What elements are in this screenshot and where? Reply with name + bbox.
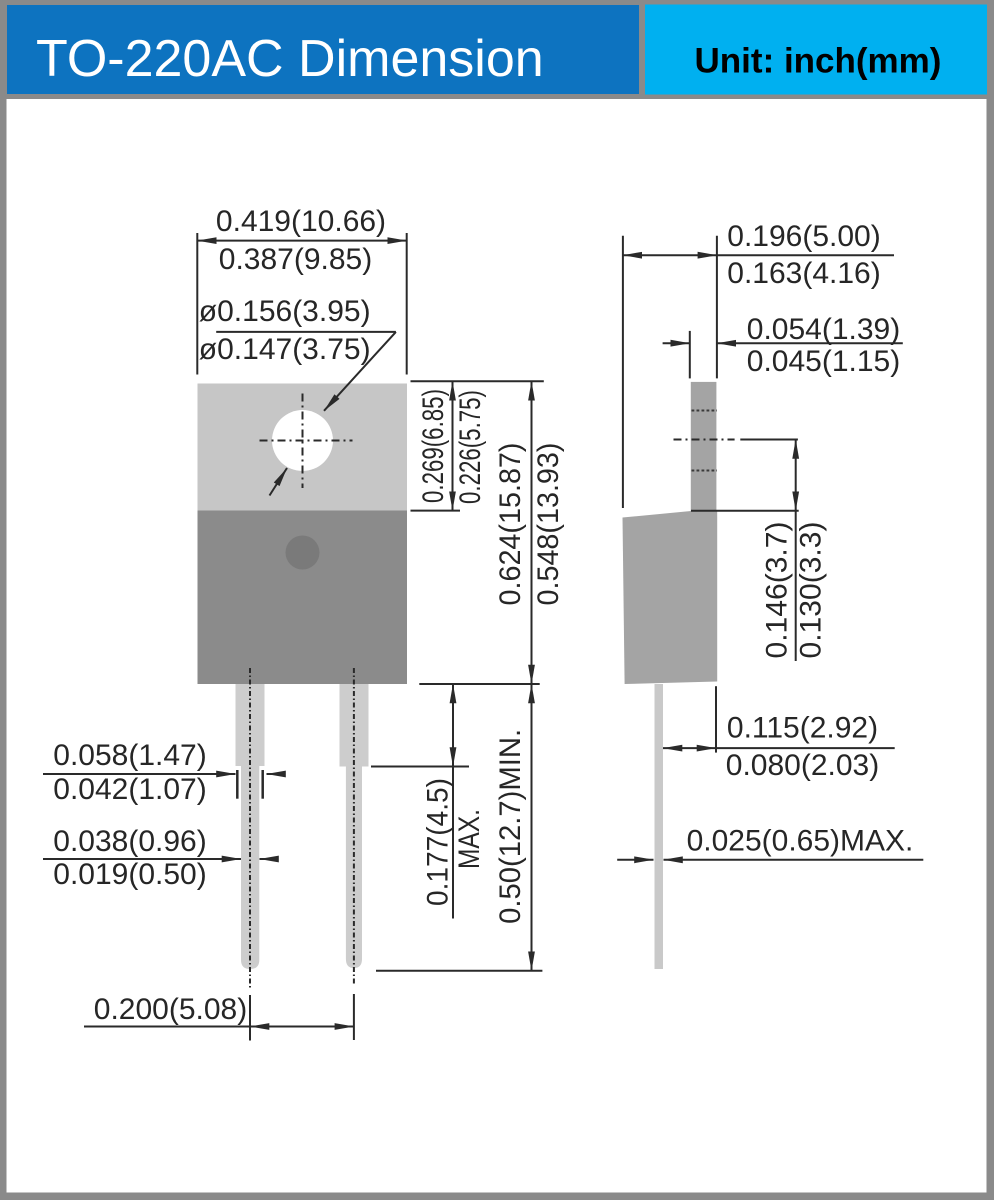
svg-text:0.038(0.96): 0.038(0.96) <box>53 825 206 858</box>
svg-text:0.130(3.3): 0.130(3.3) <box>794 522 827 659</box>
svg-text:0.042(1.07): 0.042(1.07) <box>53 773 206 806</box>
svg-text:0.177(4.5): 0.177(4.5) <box>422 778 455 906</box>
svg-text:0.025(0.65)MAX.: 0.025(0.65)MAX. <box>687 825 914 858</box>
svg-text:0.548(13.93): 0.548(13.93) <box>532 443 565 606</box>
svg-text:0.054(1.39): 0.054(1.39) <box>747 313 900 346</box>
svg-text:0.624(15.87): 0.624(15.87) <box>494 443 527 606</box>
svg-text:MAX.: MAX. <box>453 809 486 869</box>
svg-text:0.045(1.15): 0.045(1.15) <box>747 345 900 378</box>
svg-text:0.50(12.7)MIN.: 0.50(12.7)MIN. <box>494 729 527 924</box>
svg-text:0.226(5.75): 0.226(5.75) <box>454 390 487 504</box>
svg-text:0.163(4.16): 0.163(4.16) <box>727 257 880 290</box>
svg-text:TO-220AC Dimension: TO-220AC Dimension <box>36 30 544 88</box>
svg-text:ø0.156(3.95): ø0.156(3.95) <box>199 295 371 328</box>
svg-text:0.115(2.92): 0.115(2.92) <box>727 712 878 745</box>
svg-text:0.269(6.85): 0.269(6.85) <box>417 389 450 503</box>
svg-text:0.146(3.7): 0.146(3.7) <box>760 522 793 659</box>
svg-text:0.019(0.50): 0.019(0.50) <box>53 858 206 891</box>
svg-text:Unit: inch(mm): Unit: inch(mm) <box>695 42 942 81</box>
svg-text:0.080(2.03): 0.080(2.03) <box>726 749 879 782</box>
svg-text:0.058(1.47): 0.058(1.47) <box>53 739 206 772</box>
svg-text:0.196(5.00): 0.196(5.00) <box>727 220 880 253</box>
svg-text:0.387(9.85): 0.387(9.85) <box>219 243 372 276</box>
svg-text:0.200(5.08): 0.200(5.08) <box>94 993 247 1026</box>
svg-text:0.419(10.66): 0.419(10.66) <box>216 205 386 238</box>
svg-text:ø0.147(3.75): ø0.147(3.75) <box>199 333 371 366</box>
